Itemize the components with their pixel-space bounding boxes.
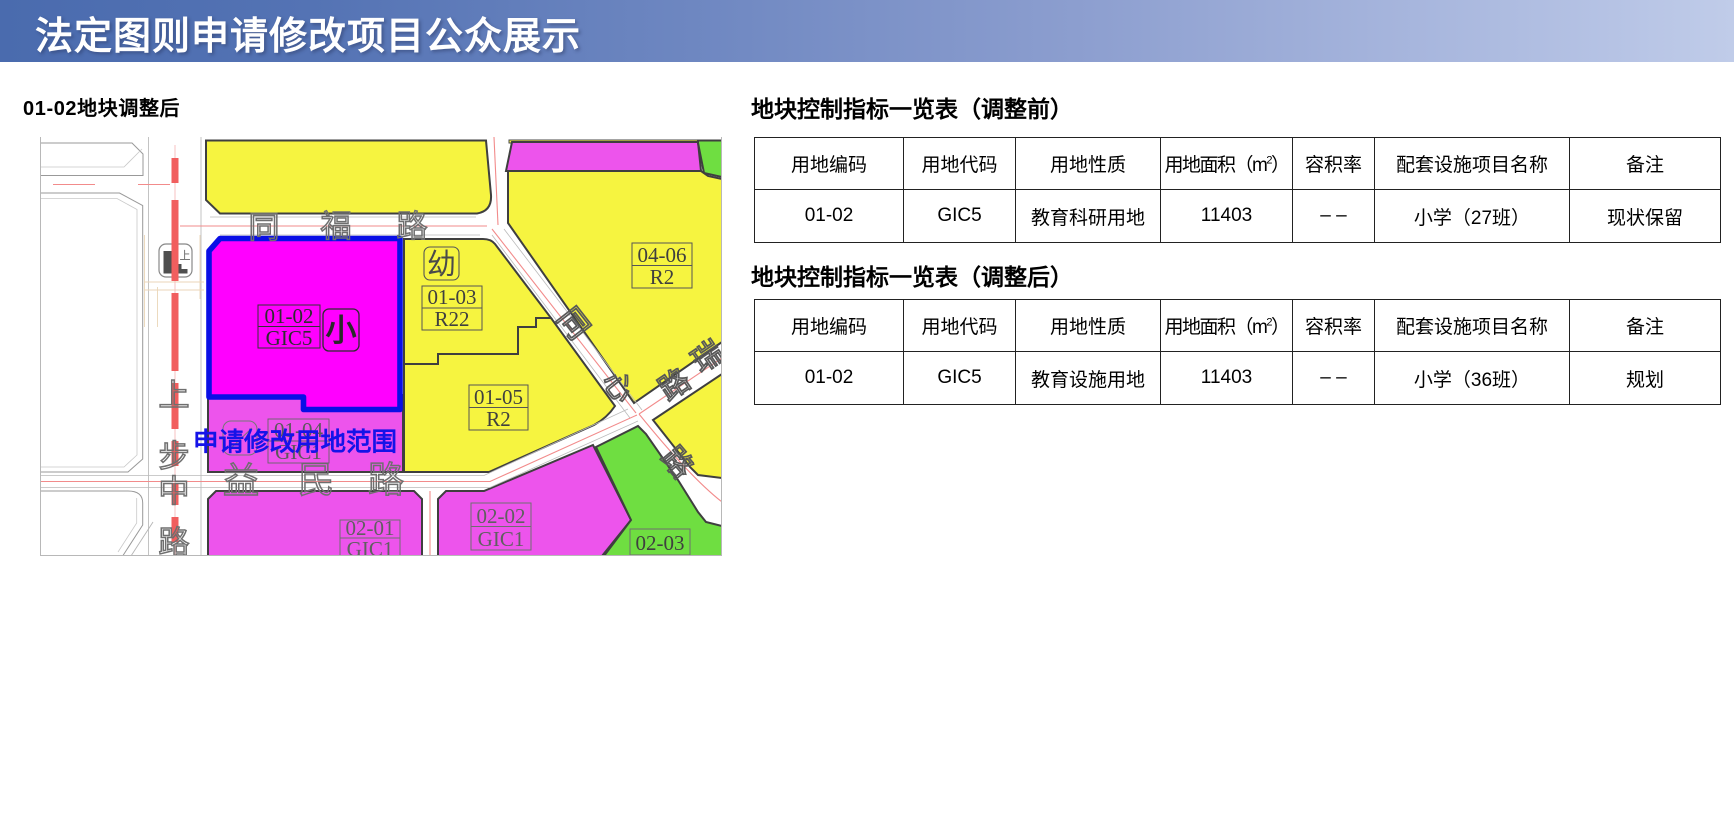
svg-text:上: 上	[159, 378, 190, 413]
svg-text:上: 上	[180, 249, 191, 262]
svg-text:GIC1: GIC1	[478, 527, 525, 551]
svg-text:路: 路	[368, 460, 404, 500]
svg-text:申请修改用地范围: 申请修改用地范围	[193, 428, 397, 457]
svg-text:04-06: 04-06	[638, 243, 687, 267]
svg-text:R2: R2	[650, 265, 675, 289]
svg-text:R22: R22	[434, 307, 469, 331]
svg-text:小: 小	[326, 313, 357, 348]
svg-text:路: 路	[397, 209, 428, 244]
svg-text:02-03: 02-03	[636, 531, 685, 555]
svg-text:R2: R2	[486, 407, 511, 431]
svg-text:中: 中	[159, 474, 190, 509]
svg-text:民: 民	[298, 460, 334, 500]
svg-text:路: 路	[159, 525, 190, 556]
svg-text:01-02: 01-02	[265, 304, 314, 328]
svg-text:01-05: 01-05	[474, 385, 523, 409]
svg-text:步: 步	[159, 439, 190, 474]
svg-text:01-03: 01-03	[428, 285, 477, 309]
svg-text:02-02: 02-02	[477, 504, 526, 528]
svg-text:同: 同	[249, 210, 280, 245]
svg-text:福: 福	[321, 209, 352, 244]
svg-text:GIC5: GIC5	[266, 326, 313, 350]
svg-text:益: 益	[223, 461, 259, 501]
svg-text:幼: 幼	[427, 248, 456, 281]
svg-text:GIC1: GIC1	[347, 537, 394, 556]
